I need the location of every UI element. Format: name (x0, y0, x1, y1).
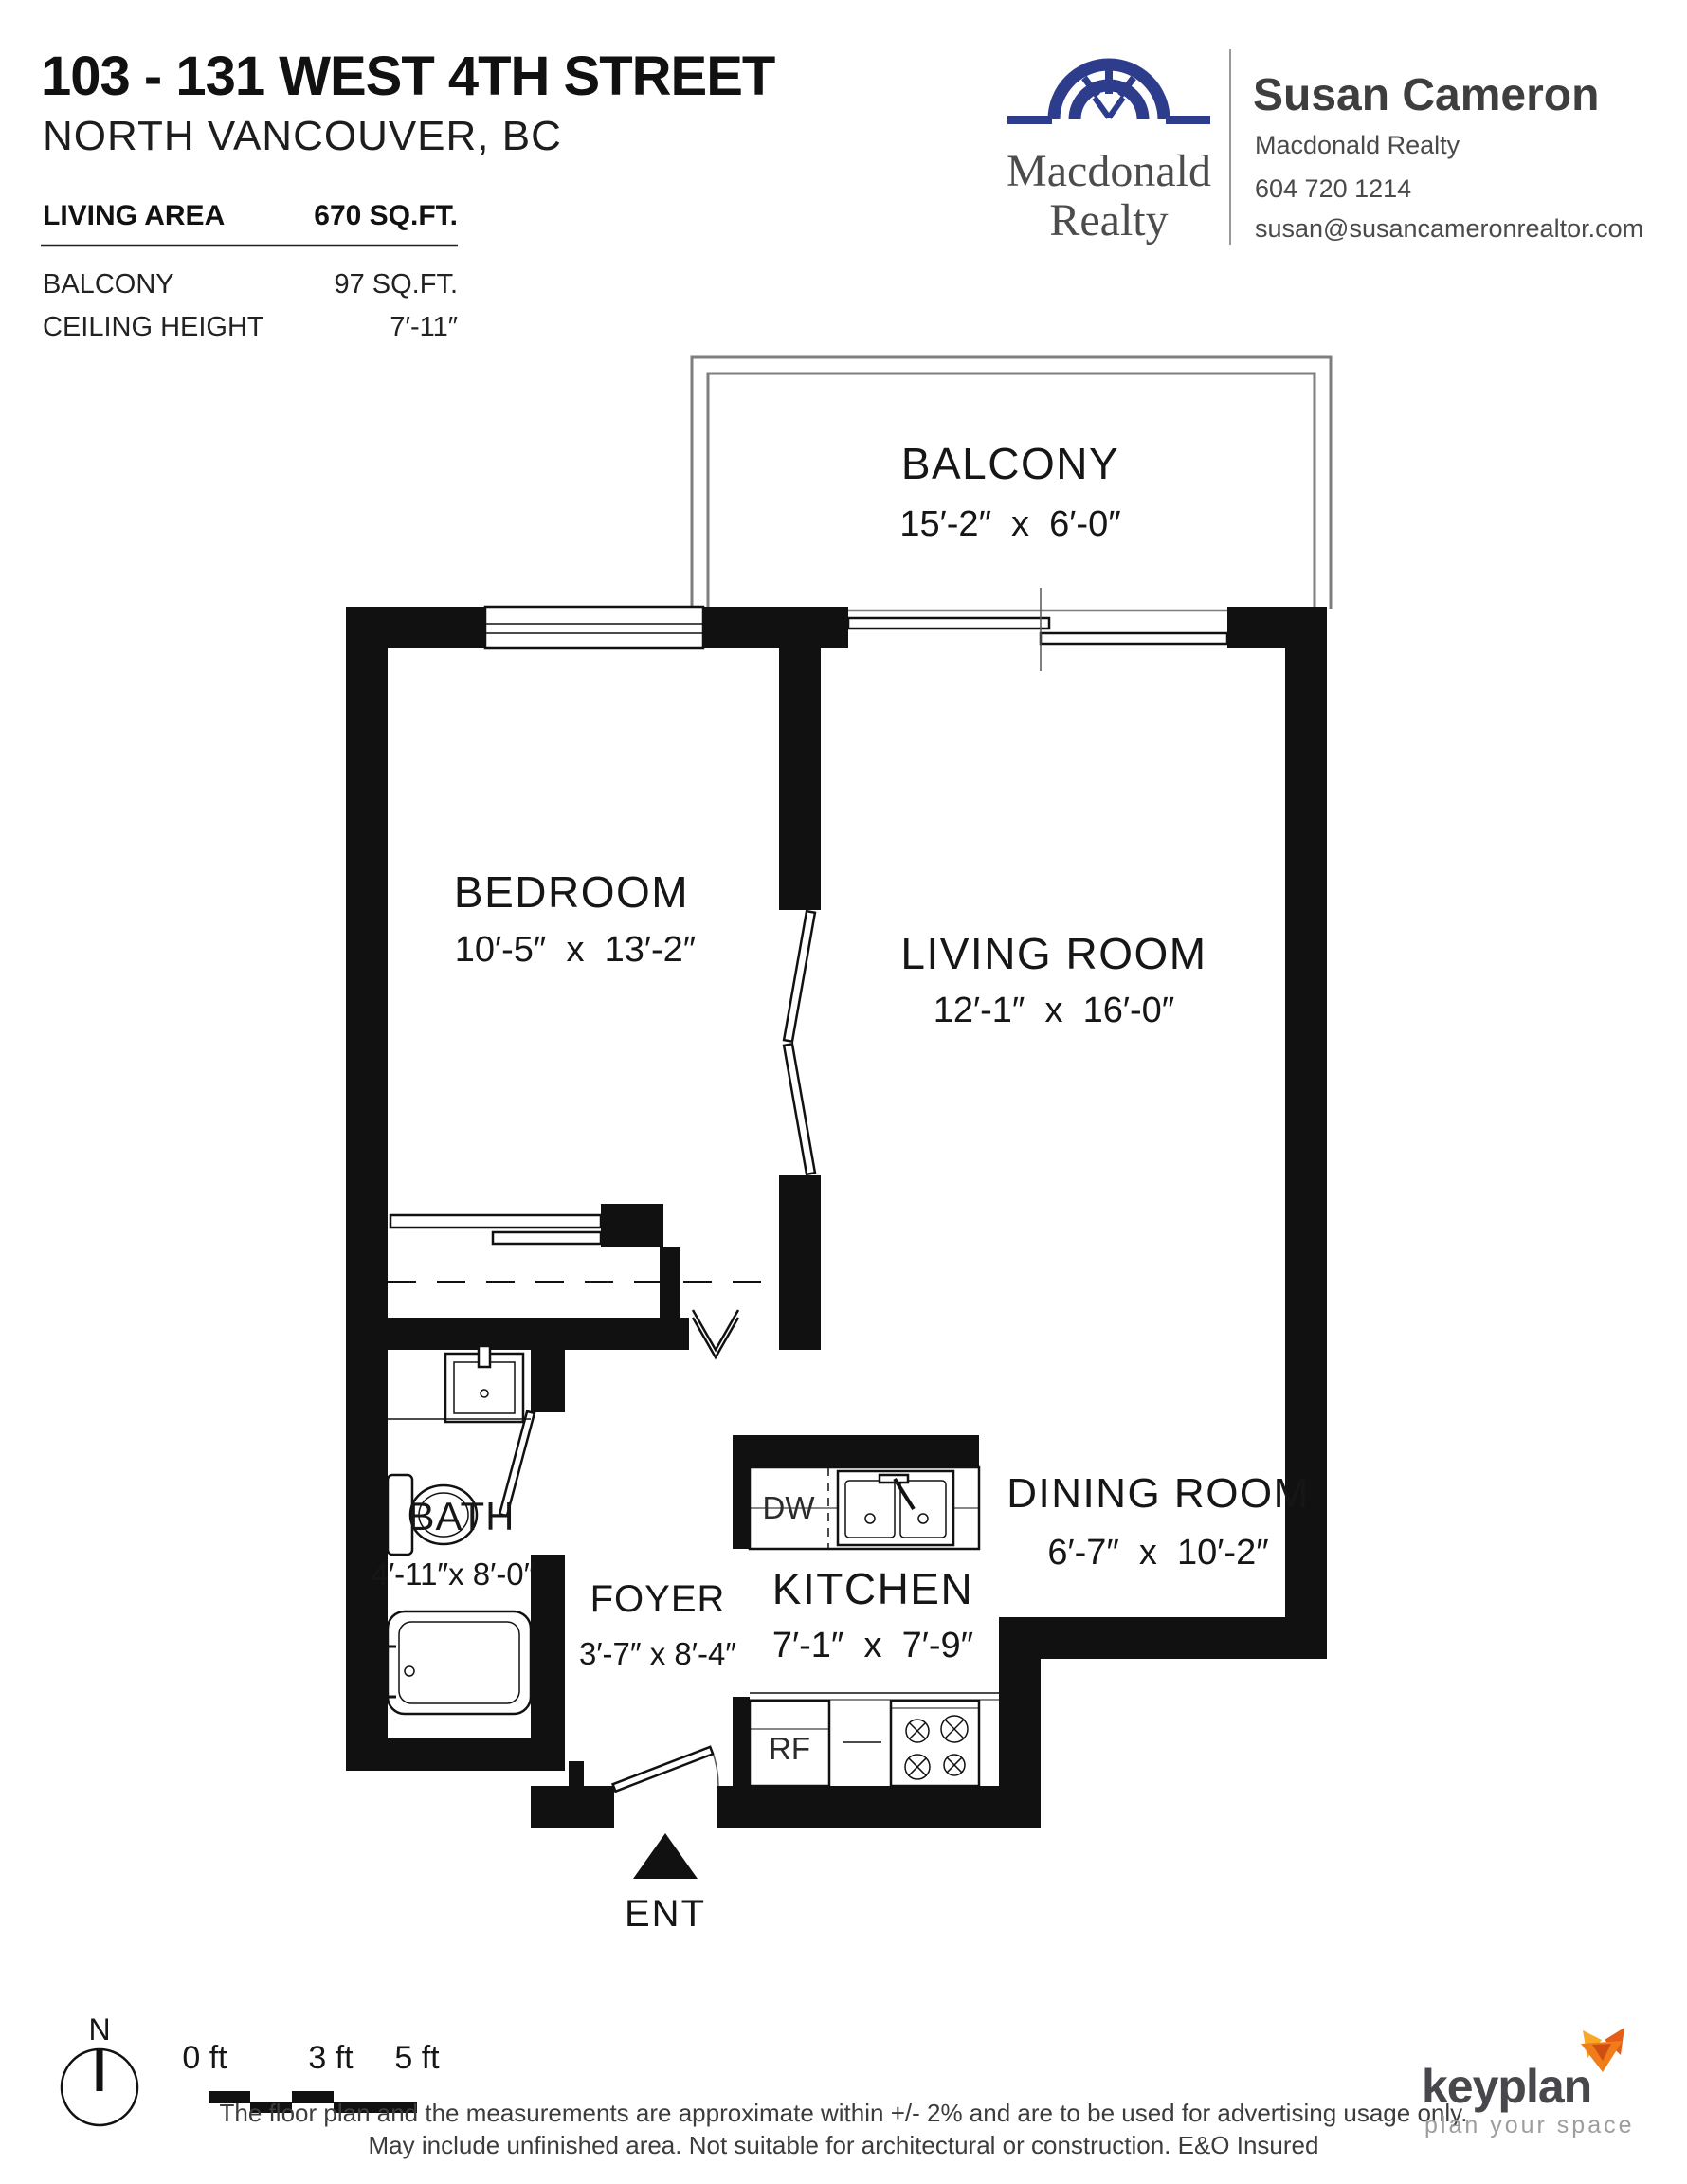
tub-inner (399, 1622, 519, 1703)
room-dims-kitchen: 7′-1″ x 7′-9″ (772, 1626, 973, 1665)
tub-outer (388, 1611, 531, 1714)
agent-company: Macdonald Realty (1255, 131, 1460, 159)
stat-value: 7′-11″ (390, 312, 458, 342)
door-leaf (784, 911, 815, 1041)
room-dims-dining: 6′-7″ x 10′-2″ (1047, 1533, 1268, 1573)
window-frame (485, 607, 703, 648)
bedroom-bifold-door (784, 911, 815, 1174)
room-dims-bath: 4′-11″x 8′-0″ (372, 1556, 535, 1592)
wall (531, 1350, 565, 1412)
stats-table: LIVING AREA 670 SQ.FT. BALCONY 97 SQ.FT.… (41, 200, 458, 342)
stat-label: BALCONY (43, 269, 174, 300)
wall (703, 607, 848, 648)
hall-door-mark (693, 1310, 738, 1357)
agent-card: Susan Cameron Macdonald Realty 604 720 1… (1253, 70, 1643, 243)
wall (999, 1617, 1327, 1659)
fridge-label: RF (769, 1731, 810, 1766)
room-name-bath: BATH (408, 1494, 516, 1538)
wall (531, 1786, 614, 1828)
compass-needle-icon (97, 2049, 103, 2091)
entry-door (613, 1747, 718, 1792)
keyplan-logo: keyplan plan your space (1422, 2028, 1635, 2138)
stat-label: LIVING AREA (43, 200, 225, 231)
scale-tick: 0 ft (182, 2040, 227, 2076)
room-name-foyer: FOYER (590, 1578, 726, 1620)
header: 103 - 131 WEST 4TH STREET NORTH VANCOUVE… (41, 45, 1643, 342)
closet-panel (390, 1215, 601, 1228)
brand-name-line1: Macdonald (1007, 146, 1211, 196)
arch-spoke (1095, 98, 1109, 118)
compass-north-label: N (88, 2012, 110, 2047)
wall (779, 648, 821, 910)
page-title: 103 - 131 WEST 4TH STREET (41, 45, 775, 107)
slider-panel (1041, 633, 1227, 644)
stove (891, 1701, 979, 1786)
keyplan-tagline: plan your space (1424, 2112, 1635, 2138)
entrance-marker: ENT (625, 1833, 706, 1935)
balcony-inner-rail (708, 373, 1315, 609)
room-name-bedroom: BEDROOM (454, 867, 689, 917)
wall (660, 1247, 680, 1321)
page-subtitle: NORTH VANCOUVER, BC (43, 113, 562, 159)
agent-name: Susan Cameron (1253, 70, 1599, 120)
scale-tick: 3 ft (308, 2040, 354, 2076)
bedroom-window (485, 607, 703, 648)
room-name-kitchen: KITCHEN (772, 1564, 973, 1613)
footer: N 0 ft 3 ft 5 ft The floor plan and the … (62, 2012, 1635, 2159)
room-dims-living: 12′-1″ x 16′-0″ (934, 991, 1175, 1030)
agent-phone: 604 720 1214 (1255, 174, 1411, 203)
dishwasher-label: DW (763, 1490, 816, 1525)
wall (569, 1761, 584, 1786)
room-dims-foyer: 3′-7″ x 8′-4″ (579, 1636, 736, 1671)
keyplan-wordmark: keyplan (1422, 2060, 1591, 2113)
kitchen-counter: DW (750, 1467, 979, 1549)
agent-email: susan@susancameronrealtor.com (1255, 214, 1643, 243)
disclaimer-line1: The floor plan and the measurements are … (220, 2099, 1468, 2127)
wall (346, 607, 388, 1771)
stat-value: 97 SQ.FT. (334, 269, 458, 300)
room-dims-balcony: 15′-2″ x 6′-0″ (899, 504, 1120, 544)
arch-base-right (1166, 116, 1210, 124)
closet-sliding-doors (388, 1215, 775, 1282)
drain (481, 1390, 488, 1397)
wall (346, 1738, 565, 1771)
burner (906, 1720, 929, 1742)
stat-value: 670 SQ.FT. (314, 200, 458, 231)
stove-outline (891, 1701, 979, 1786)
room-name-balcony: BALCONY (901, 439, 1119, 488)
disclaimer: The floor plan and the measurements are … (220, 2099, 1468, 2159)
arch-spoke (1109, 98, 1123, 118)
room-name-dining: DINING ROOM (1007, 1470, 1310, 1517)
slider-panel (848, 618, 1049, 628)
wall (601, 1204, 663, 1247)
floorplan-page: 103 - 131 WEST 4TH STREET NORTH VANCOUVE… (0, 0, 1687, 2184)
room-dims-bedroom: 10′-5″ x 13′-2″ (455, 930, 697, 970)
macdonald-realty-logo: Macdonald Realty (1007, 64, 1211, 246)
door-leaf (613, 1747, 714, 1792)
stat-label: CEILING HEIGHT (43, 312, 264, 342)
wall (733, 1697, 750, 1786)
door-swing-arc (712, 1750, 718, 1786)
floorplan-drawing: DW RF (346, 357, 1331, 1935)
wall (531, 1555, 565, 1771)
burner (905, 1755, 930, 1779)
tub-spout (405, 1666, 414, 1676)
wall (733, 1435, 750, 1549)
bathtub (383, 1611, 531, 1714)
compass: N (62, 2012, 137, 2125)
arch-base-left (1007, 116, 1052, 124)
balcony-sliding-door (848, 588, 1227, 671)
kitchen-appliance-row: RF (750, 1693, 999, 1786)
wall (779, 1175, 821, 1350)
wall (717, 1786, 999, 1828)
vanity-basin (454, 1362, 515, 1413)
wall (750, 1435, 979, 1467)
entrance-label: ENT (625, 1893, 706, 1935)
room-name-living: LIVING ROOM (900, 929, 1206, 978)
faucet (880, 1475, 908, 1483)
entrance-arrow-icon (633, 1833, 698, 1879)
kitchen-sink (838, 1471, 953, 1545)
burner (944, 1755, 965, 1775)
scale-tick: 5 ft (394, 2040, 440, 2076)
bathroom-vanity (388, 1346, 531, 1422)
faucet (479, 1346, 490, 1367)
door-leaf (784, 1044, 815, 1174)
arch-icon (1007, 64, 1210, 124)
closet-panel (493, 1232, 601, 1244)
burner (941, 1716, 968, 1742)
brand-name-line2: Realty (1049, 195, 1168, 246)
wall (346, 1318, 689, 1350)
disclaimer-line2: May include unfinished area. Not suitabl… (369, 2131, 1319, 2159)
